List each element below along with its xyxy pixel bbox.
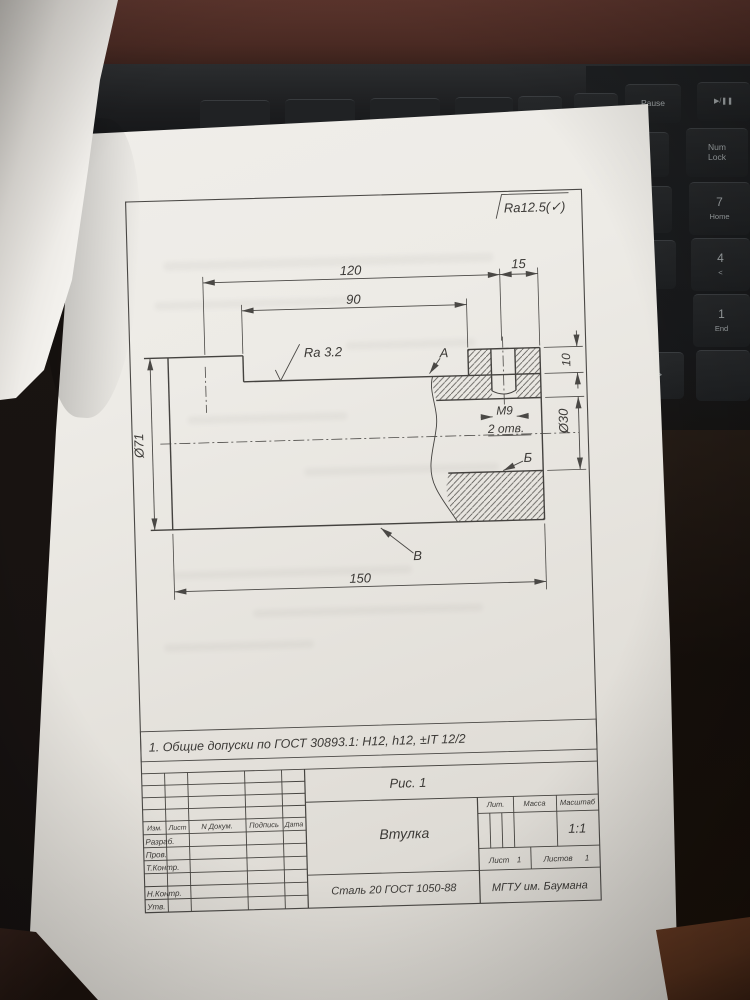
general-roughness-text: Ra12.5(✓): [504, 199, 566, 216]
roughness-symbol-ra32: Ra 3.2: [275, 343, 344, 381]
key-play-pause: ▶/❚❚: [697, 82, 750, 121]
col-list: Лист: [167, 825, 186, 833]
general-roughness-symbol: Ra12.5(✓): [496, 193, 570, 219]
scale-header: Масштаб: [560, 797, 596, 807]
photo-scene: PrtSc ScrLk Pause ▶/❚❚ PgUp NumLock PgDn…: [0, 0, 750, 1000]
thread-m9: М9: [496, 403, 513, 417]
row-nkontr: Н.Контр.: [147, 889, 182, 899]
key-4-label: 4: [717, 252, 724, 266]
extension-lines: [166, 266, 590, 599]
row-tkontr: Т.Контр.: [146, 863, 179, 873]
col-date: Дата: [284, 821, 304, 829]
sheet-label: Лист: [488, 856, 510, 866]
dim-10: 10: [559, 353, 573, 367]
key-blank-right: [696, 350, 750, 401]
dim-120: 120: [340, 262, 363, 278]
sheet-num: 1: [517, 855, 522, 864]
label-b: Б: [523, 450, 532, 465]
key-left-arrow-label: <: [718, 269, 722, 278]
dim-150: 150: [349, 570, 372, 586]
mass-header: Масса: [523, 799, 545, 809]
dim-d30: Ø30: [555, 408, 571, 435]
roughness-ra32-text: Ra 3.2: [304, 344, 343, 360]
label-a: А: [438, 345, 448, 360]
key-home-label: Home: [709, 213, 729, 222]
holes-note: 2 отв.: [487, 421, 525, 436]
key-7-home: 7Home: [689, 182, 750, 235]
dim-d71: Ø71: [131, 433, 147, 459]
lit-header: Лит.: [486, 800, 505, 810]
key-4-left: 4<: [691, 238, 750, 291]
col-izm: Изм.: [147, 825, 162, 832]
key-numlock-label-bottom: Lock: [708, 153, 726, 163]
key-7-label: 7: [716, 196, 723, 210]
label-v: В: [413, 548, 422, 563]
sheets-num: 1: [585, 853, 590, 862]
title-block: Рис. 1 Изм. Лист N Докум. Подпись Дата Р…: [142, 761, 602, 913]
tolerance-note-box: 1. Общие допуски по ГОСТ 30893.1: H12, h…: [140, 719, 597, 762]
row-prov: Пров.: [146, 850, 167, 860]
material: Сталь 20 ГОСТ 1050-88: [331, 882, 457, 898]
row-razrab: Разраб.: [145, 837, 174, 847]
col-doc: N Докум.: [201, 821, 233, 831]
sheets-label: Листов: [542, 854, 572, 864]
play-pause-icon: ▶/❚❚: [714, 98, 733, 106]
engineering-drawing: Ra12.5(✓): [90, 131, 632, 945]
scale-value: 1:1: [568, 820, 586, 835]
key-1-end: 1End: [693, 294, 750, 347]
print-bleed-smudges: [153, 253, 504, 652]
key-end-label: End: [715, 325, 728, 334]
col-sign: Подпись: [249, 820, 279, 830]
key-1-label: 1: [718, 308, 725, 322]
tolerance-note-text: 1. Общие допуски по ГОСТ 30893.1: H12, h…: [149, 732, 466, 755]
dim-90: 90: [346, 291, 362, 306]
dim-15: 15: [511, 256, 527, 271]
organization: МГТУ им. Баумана: [492, 879, 588, 894]
key-numlock: NumLock: [686, 128, 748, 177]
row-utv: Утв.: [146, 902, 165, 912]
figure-caption: Рис. 1: [389, 775, 426, 791]
part-name: Втулка: [379, 825, 429, 842]
